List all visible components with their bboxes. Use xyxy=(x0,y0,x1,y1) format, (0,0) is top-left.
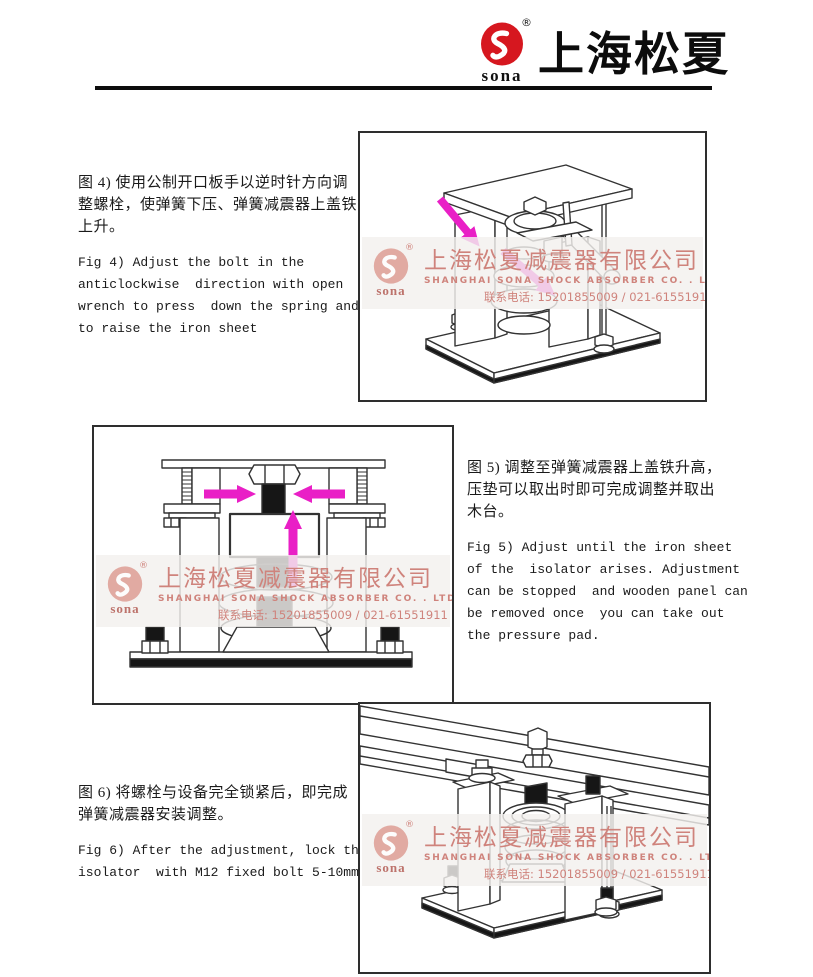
fig6-caption-cn: 图 6) 将螺栓与设备完全锁紧后，即完成 弹簧减震器安装调整。 xyxy=(78,782,388,826)
sona-logo-icon xyxy=(480,22,524,66)
watermark-company-cn: 上海松夏减震器有限公司 xyxy=(424,241,697,275)
watermark-text: 上海松夏减震器有限公司 SHANGHAI SONA SHOCK ABSORBER… xyxy=(424,818,701,882)
watermark: ® sona 上海松夏减震器有限公司 SHANGHAI SONA SHOCK A… xyxy=(96,555,450,627)
fig4-caption-en: Fig 4) Adjust the bolt in the anticlockw… xyxy=(78,252,378,340)
watermark-text: 上海松夏减震器有限公司 SHANGHAI SONA SHOCK ABSORBER… xyxy=(158,559,444,623)
fig5-text-block: 图 5) 调整至弹簧减震器上盖铁升高， 压垫可以取出时即可完成调整并取出 木台。… xyxy=(467,457,767,647)
watermark-phone: 联系电话: 15201855009 / 021-61551911 xyxy=(424,289,697,305)
fig4-caption-cn: 图 4) 使用公制开口板手以逆时针方向调 整螺栓，使弹簧下压、弹簧减震器上盖铁 … xyxy=(78,172,378,238)
registered-mark: ® xyxy=(405,820,414,830)
registered-mark: ® xyxy=(139,561,148,571)
brand-title: 上海松夏 xyxy=(538,18,730,84)
watermark-phone: 联系电话: 15201855009 / 021-61551911 xyxy=(424,866,701,882)
sona-logo-icon xyxy=(373,825,409,861)
sona-logo-text: sona xyxy=(474,66,530,86)
fig4-text-block: 图 4) 使用公制开口板手以逆时针方向调 整螺栓，使弹簧下压、弹簧减震器上盖铁 … xyxy=(78,172,378,340)
watermark-company-en: SHANGHAI SONA SHOCK ABSORBER CO. . LTD xyxy=(424,276,697,286)
watermark-logo-text: sona xyxy=(368,283,414,299)
watermark-text: 上海松夏减震器有限公司 SHANGHAI SONA SHOCK ABSORBER… xyxy=(424,241,697,305)
registered-mark: ® xyxy=(521,16,532,29)
sona-watermark-logo: ® sona xyxy=(102,566,148,617)
watermark-logo-text: sona xyxy=(102,601,148,617)
fig5-caption-en: Fig 5) Adjust until the iron sheet of th… xyxy=(467,537,767,647)
fig5-caption-cn: 图 5) 调整至弹簧减震器上盖铁升高， 压垫可以取出时即可完成调整并取出 木台。 xyxy=(467,457,767,523)
sona-logo: ® sona xyxy=(474,22,530,86)
figure4-image: ® sona 上海松夏减震器有限公司 SHANGHAI SONA SHOCK A… xyxy=(358,131,707,402)
watermark-company-cn: 上海松夏减震器有限公司 xyxy=(158,559,444,593)
figure6-image: ® sona 上海松夏减震器有限公司 SHANGHAI SONA SHOCK A… xyxy=(358,702,711,974)
sona-logo-icon xyxy=(373,248,409,284)
header-divider xyxy=(95,86,712,90)
watermark-company-cn: 上海松夏减震器有限公司 xyxy=(424,818,701,852)
figure5-image: ® sona 上海松夏减震器有限公司 SHANGHAI SONA SHOCK A… xyxy=(92,425,454,705)
fig6-caption-en: Fig 6) After the adjustment, lock the is… xyxy=(78,840,388,884)
watermark: ® sona 上海松夏减震器有限公司 SHANGHAI SONA SHOCK A… xyxy=(362,237,703,309)
watermark-phone: 联系电话: 15201855009 / 021-61551911 xyxy=(158,607,444,623)
document-page: ® sona 上海松夏 图 4) 使用公制开口板手以逆时针方向调 整螺栓，使弹簧… xyxy=(0,0,813,977)
watermark: ® sona 上海松夏减震器有限公司 SHANGHAI SONA SHOCK A… xyxy=(362,814,707,886)
sona-logo-icon xyxy=(107,566,143,602)
watermark-company-en: SHANGHAI SONA SHOCK ABSORBER CO. . LTD xyxy=(158,594,444,604)
sona-watermark-logo: ® sona xyxy=(368,248,414,299)
sona-watermark-logo: ® sona xyxy=(368,825,414,876)
watermark-company-en: SHANGHAI SONA SHOCK ABSORBER CO. . LTD xyxy=(424,853,701,863)
watermark-logo-text: sona xyxy=(368,860,414,876)
registered-mark: ® xyxy=(405,243,414,253)
fig6-text-block: 图 6) 将螺栓与设备完全锁紧后，即完成 弹簧减震器安装调整。 Fig 6) A… xyxy=(78,782,388,884)
